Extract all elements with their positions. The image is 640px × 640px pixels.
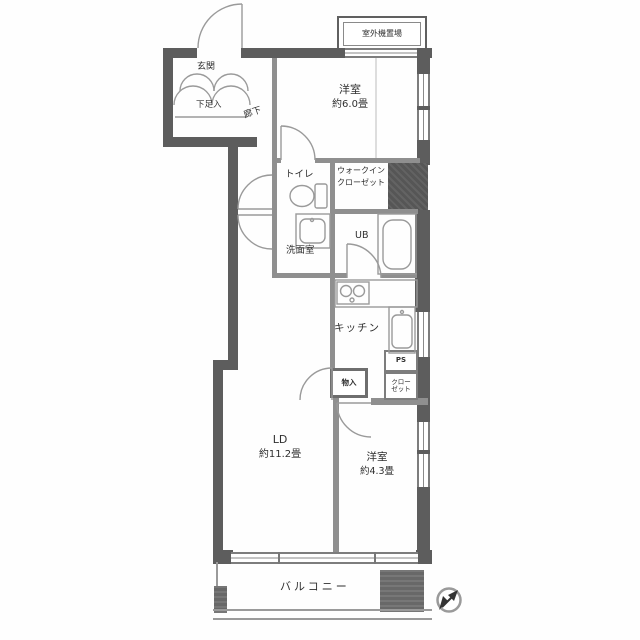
- bedroom2-size-label: 約4.3畳: [347, 467, 407, 477]
- partition-washroom: [330, 214, 335, 274]
- wic-label-line1: ウォークイン: [337, 167, 385, 176]
- closet-box: クロー ゼット: [384, 372, 418, 400]
- bedroom1-name-label: 洋室: [310, 84, 390, 96]
- balcony-outer-line: [213, 618, 432, 620]
- wic-label-line2: クローゼット: [337, 179, 385, 188]
- pipe-shaft: [388, 163, 428, 213]
- pipe-space-label: PS: [396, 357, 406, 365]
- partition-bedroom2-left: [333, 405, 339, 552]
- toilet-label: トイレ: [285, 170, 314, 180]
- living-size-label: 約11.2畳: [240, 449, 320, 460]
- wall-entrance-left: [163, 48, 173, 147]
- toilet-icon: [290, 184, 327, 208]
- wall-left-lower: [213, 360, 223, 562]
- wall-right: [417, 58, 430, 74]
- wall-left-upper: [228, 140, 238, 370]
- bedroom1-door-arc: [281, 126, 315, 160]
- partition-washroom-bottom: [272, 273, 347, 278]
- bath-label: UB: [355, 231, 368, 241]
- window-bedroom2: [417, 422, 430, 450]
- outdoor-unit-space: 室外機置場: [337, 16, 427, 52]
- balcony-block: [380, 570, 424, 612]
- storage-label: 物入: [342, 379, 357, 387]
- wall-segment: [416, 550, 432, 564]
- partition-hall: [272, 58, 277, 277]
- window-mullion: [278, 552, 280, 564]
- wall-entrance-bottom: [163, 137, 257, 147]
- washroom-label: 洗面室: [286, 246, 315, 256]
- wall-segment: [416, 48, 432, 58]
- balcony-label: バルコニー: [280, 581, 350, 593]
- window-bedroom1: [417, 110, 430, 140]
- partition-bath-bottom: [381, 273, 417, 278]
- kitchen-label: キッチン: [334, 323, 380, 335]
- balcony-edge-bottom: [213, 609, 432, 611]
- window-kitchen: [417, 312, 430, 357]
- compass-icon: [438, 589, 461, 612]
- bedroom1-size-label: 約6.0畳: [310, 99, 390, 110]
- kitchen-door-arc: [300, 368, 332, 400]
- outdoor-unit-label-box: 室外機置場: [343, 22, 421, 46]
- shoe-cabinet-icon: [174, 74, 250, 117]
- kitchen-counter-icon: [335, 280, 417, 353]
- partition-bedroom2-top: [333, 398, 339, 405]
- wall-right: [417, 357, 430, 422]
- partition-bedroom1: [272, 158, 281, 163]
- bedroom2-door-arc: [337, 403, 371, 437]
- window-bedroom2: [417, 454, 430, 487]
- wall-right: [417, 487, 430, 552]
- toilet-door-arc: [238, 175, 272, 209]
- partition-toilet: [330, 162, 335, 212]
- storage-box: 物入: [330, 368, 368, 398]
- wall-right: [415, 210, 430, 312]
- closet-label-line2: ゼット: [391, 386, 411, 393]
- wall-segment: [255, 48, 347, 58]
- entry-door-arc: [198, 4, 242, 48]
- hallway-label: 廊下: [243, 106, 263, 121]
- floor-plan: 室外機置場 物入 PS クロー ゼット: [0, 0, 640, 640]
- washbasin-icon: [296, 214, 330, 248]
- living-name-label: LD: [240, 434, 320, 446]
- window-top: [345, 48, 417, 58]
- living-door-arc: [238, 215, 272, 249]
- partition-wic: [330, 209, 418, 214]
- window-bedroom1: [417, 74, 430, 106]
- bathtub-icon: [378, 214, 416, 274]
- bath-door-arc: [347, 244, 381, 278]
- window-balcony-doors: [231, 552, 418, 564]
- outdoor-unit-label: 室外機置場: [362, 30, 402, 39]
- window-mullion: [374, 552, 376, 564]
- shoebox-label: 下足入: [196, 101, 222, 110]
- bedroom2-name-label: 洋室: [347, 452, 407, 464]
- pipe-space-box: PS: [384, 350, 418, 372]
- genkan-label: 玄関: [197, 63, 215, 73]
